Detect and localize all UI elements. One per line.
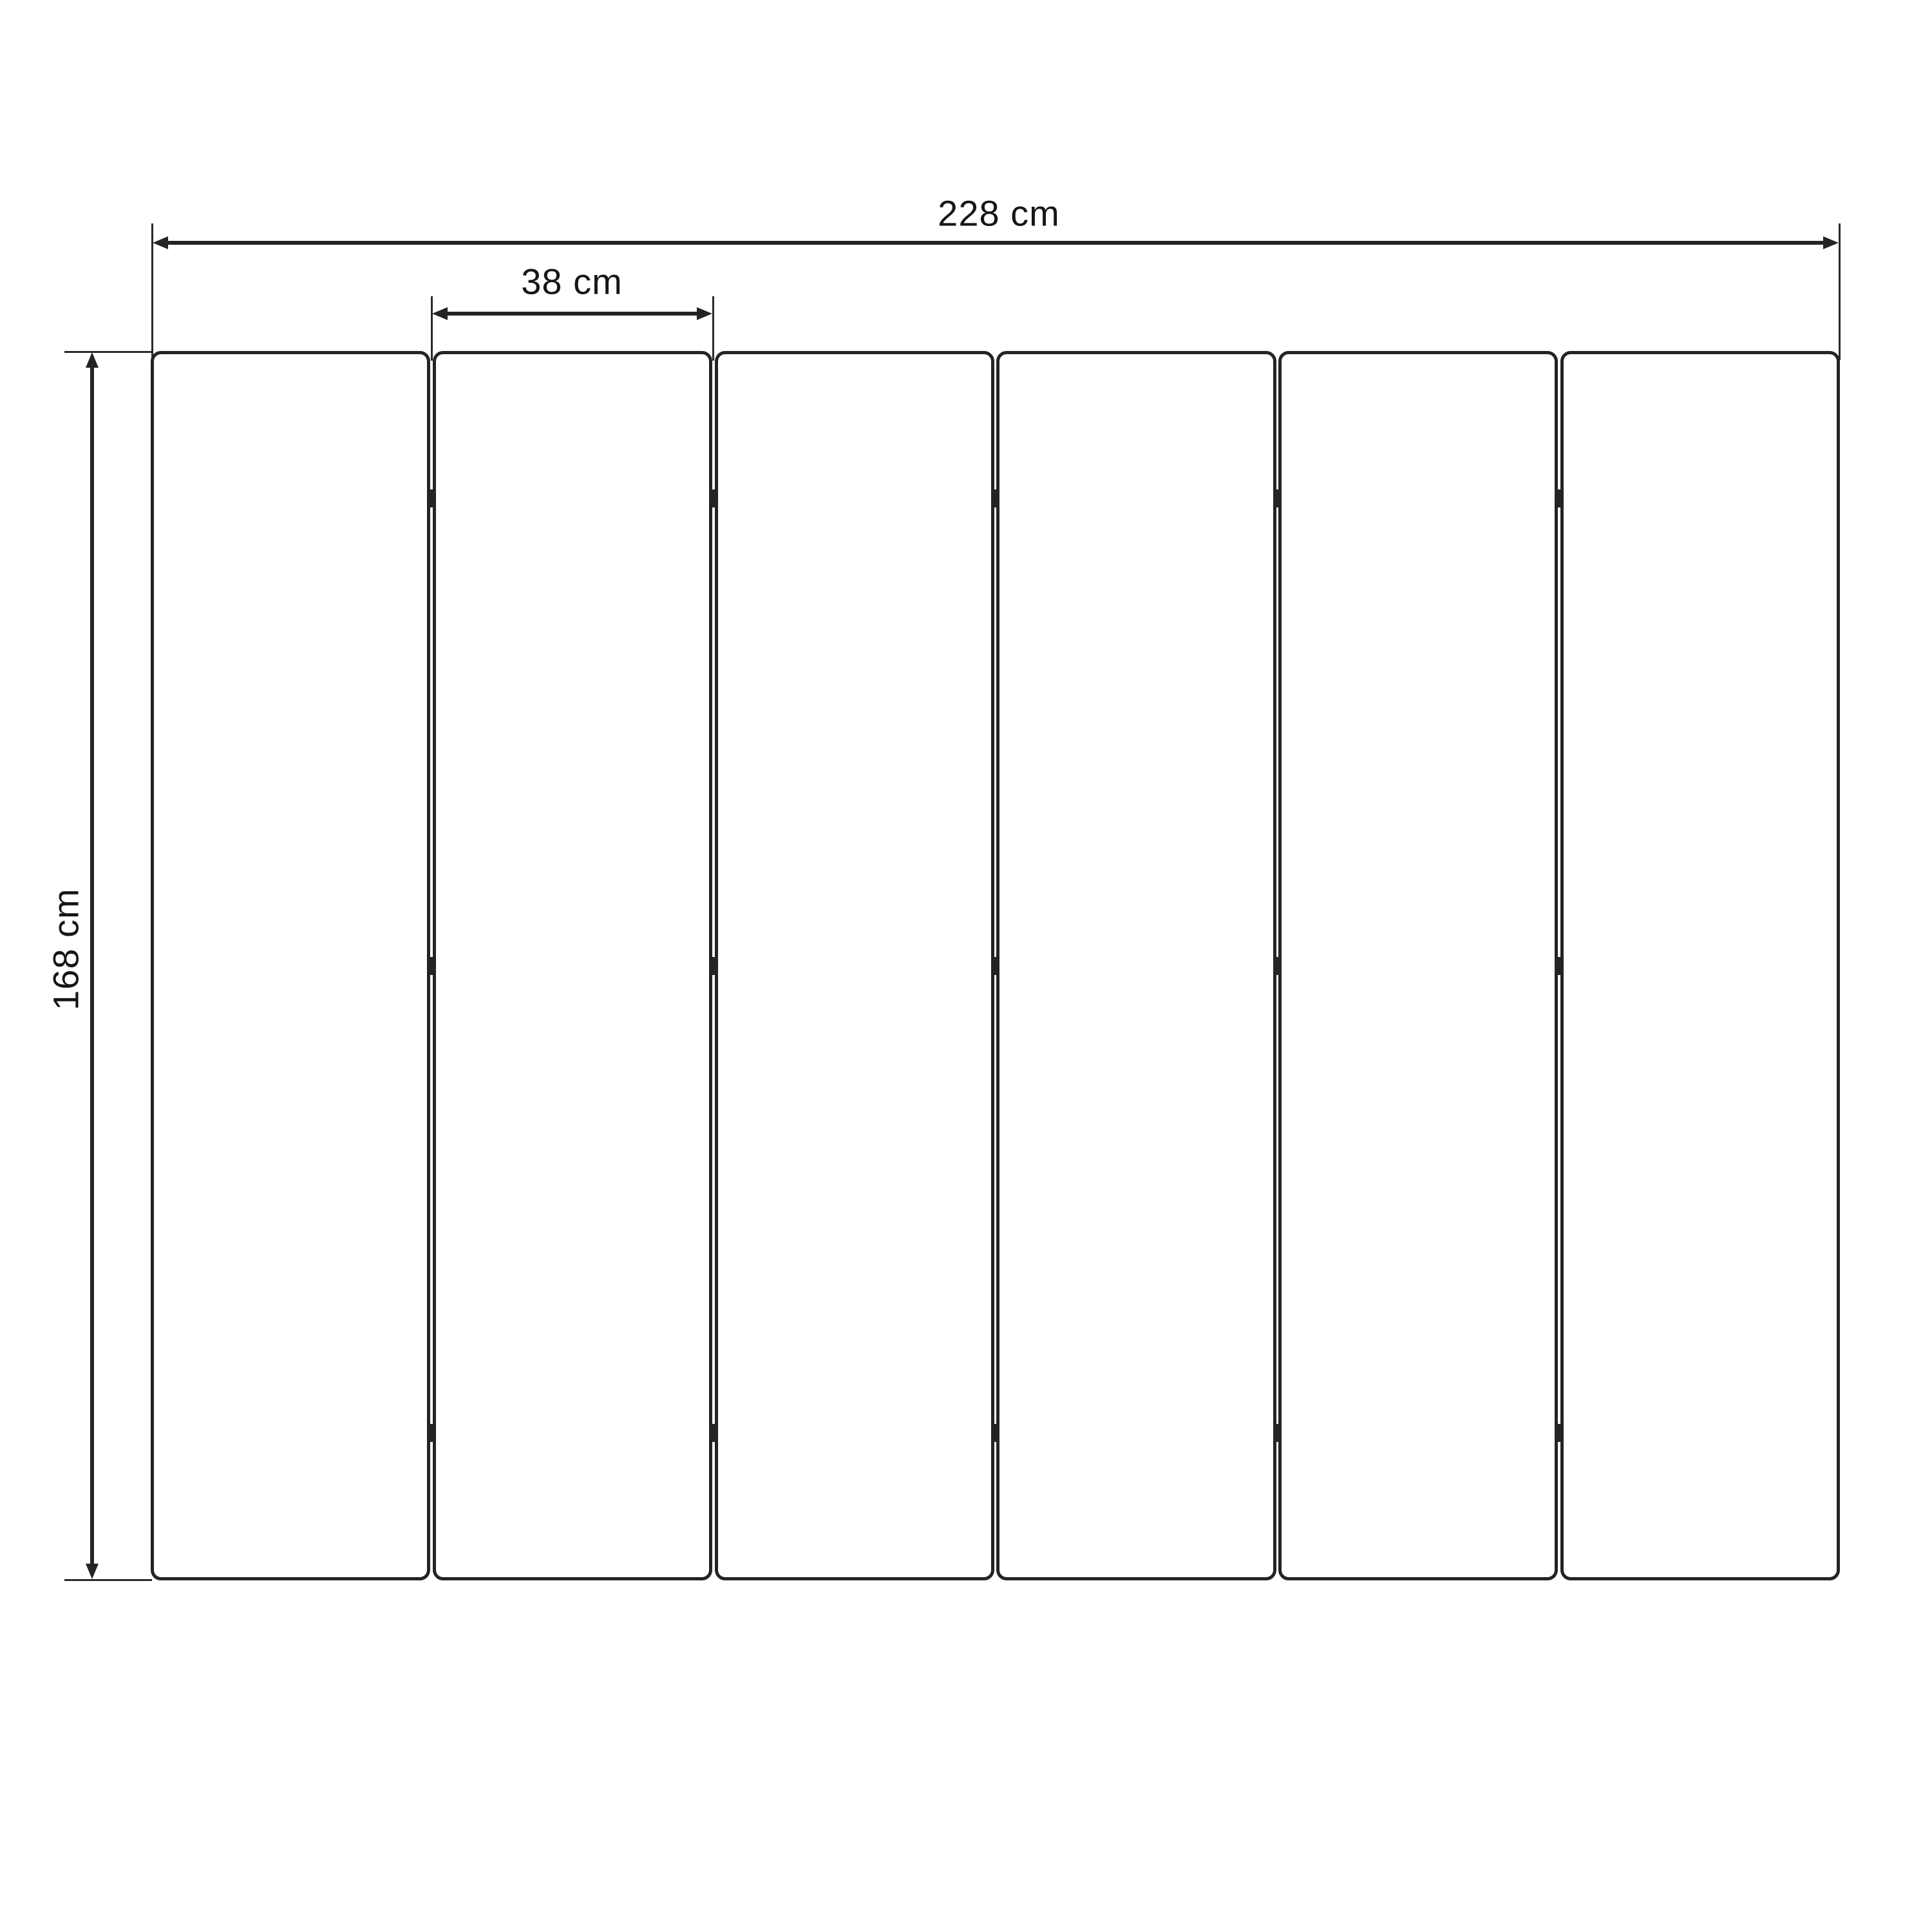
folding-screen-dimension-drawing: 228 cm 38 cm 168 cm — [0, 0, 1932, 1932]
panel-width-dimension-line — [440, 312, 705, 316]
panel-width-extension-line-right — [712, 296, 714, 361]
screen-panel-2 — [433, 351, 712, 1580]
total-width-arrow-right-icon — [1823, 236, 1839, 249]
height-arrow-up-icon — [86, 352, 99, 368]
hinge-joint4-pos3 — [1273, 1424, 1282, 1442]
hinge-joint3-pos3 — [991, 1424, 999, 1442]
hinge-joint1-pos2 — [428, 957, 436, 975]
height-dimension-line — [90, 361, 94, 1571]
total-width-dimension-label: 228 cm — [938, 193, 1060, 234]
height-extension-line-bottom — [64, 1579, 152, 1581]
hinge-joint1-pos1 — [428, 489, 436, 507]
total-width-dimension-line — [161, 241, 1830, 245]
hinge-joint2-pos2 — [709, 957, 717, 975]
hinge-joint2-pos1 — [709, 489, 717, 507]
hinge-joint4-pos1 — [1273, 489, 1282, 507]
screen-panel-3 — [715, 351, 994, 1580]
screen-panel-1 — [151, 351, 430, 1580]
screen-panel-6 — [1560, 351, 1840, 1580]
hinge-joint4-pos2 — [1273, 957, 1282, 975]
total-width-arrow-left-icon — [153, 236, 168, 249]
height-arrow-down-icon — [86, 1564, 99, 1579]
height-extension-line-top — [64, 351, 152, 353]
hinge-joint5-pos2 — [1555, 957, 1564, 975]
hinge-joint5-pos1 — [1555, 489, 1564, 507]
total-width-extension-line-right — [1839, 223, 1841, 360]
height-dimension-label: 168 cm — [45, 888, 87, 1010]
hinge-joint3-pos1 — [991, 489, 999, 507]
screen-panel-5 — [1278, 351, 1558, 1580]
panel-width-dimension-label: 38 cm — [521, 261, 623, 303]
screen-panel-4 — [996, 351, 1276, 1580]
hinge-joint5-pos3 — [1555, 1424, 1564, 1442]
hinge-joint2-pos3 — [709, 1424, 717, 1442]
hinge-joint3-pos2 — [991, 957, 999, 975]
panel-width-extension-line-left — [431, 296, 433, 361]
panel-width-arrow-right-icon — [697, 307, 712, 320]
hinge-joint1-pos3 — [428, 1424, 436, 1442]
panel-width-arrow-left-icon — [432, 307, 448, 320]
